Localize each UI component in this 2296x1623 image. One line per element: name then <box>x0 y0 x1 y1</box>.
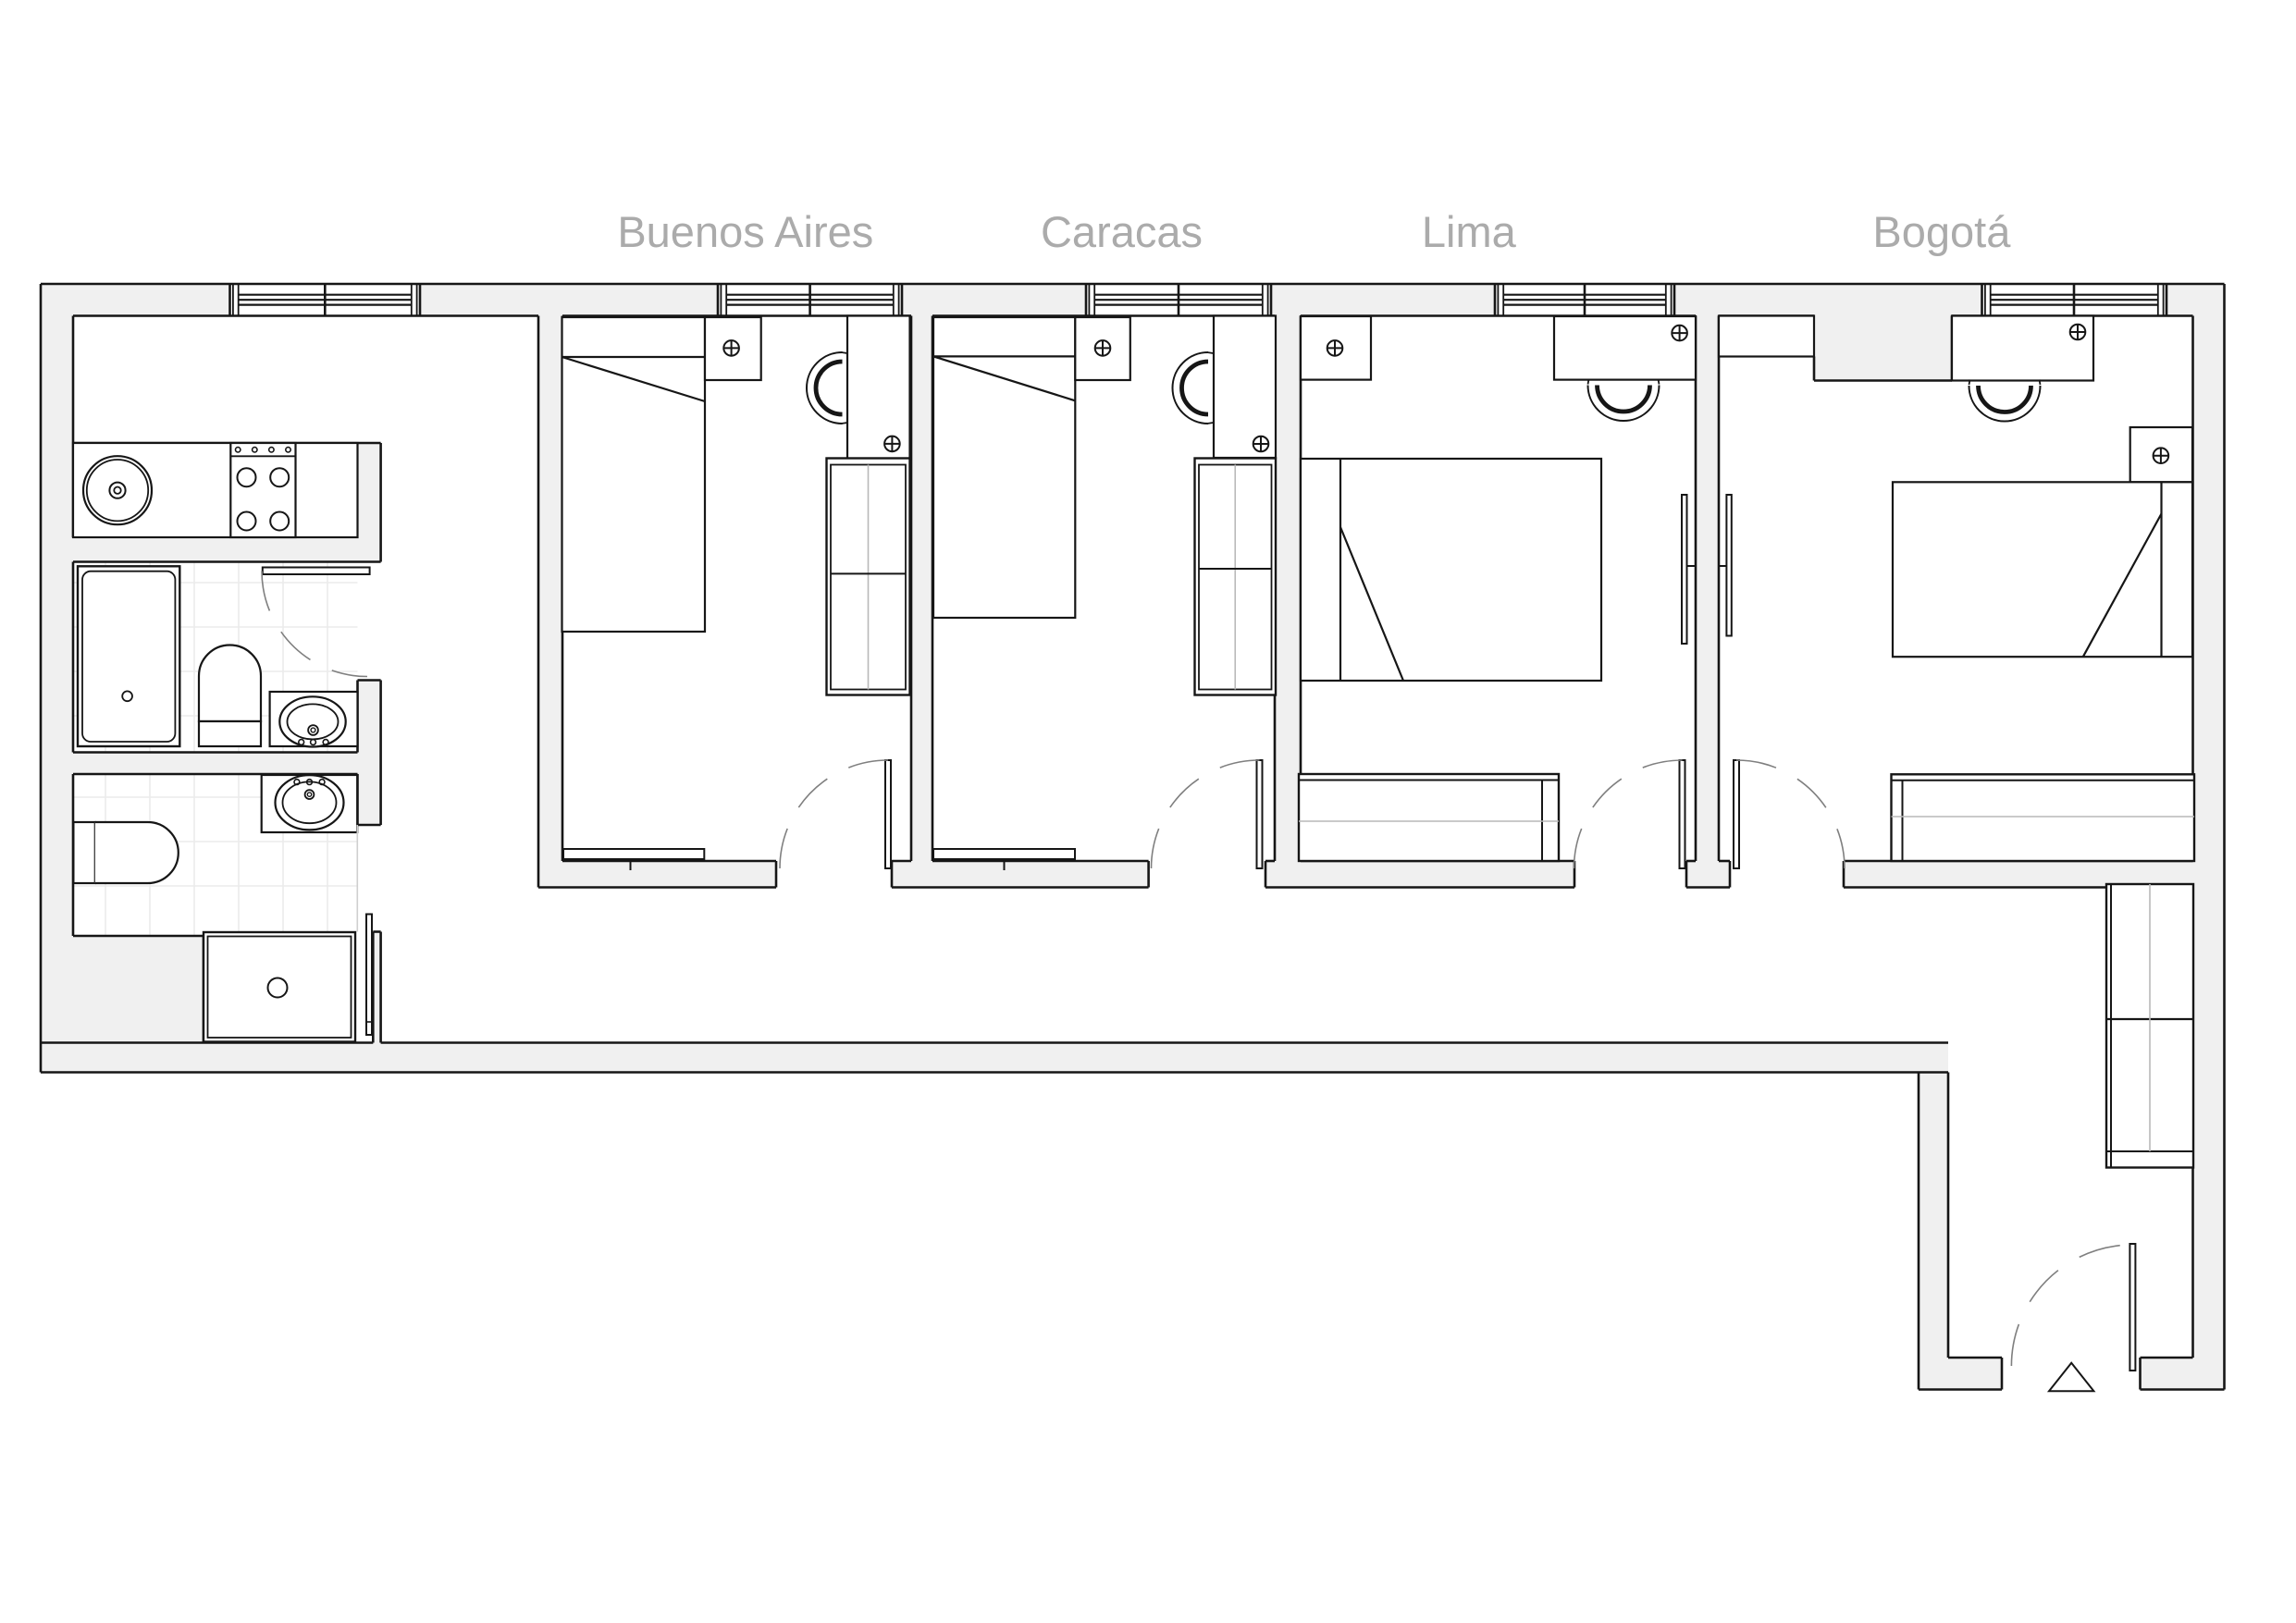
svg-text:Buenos Aires: Buenos Aires <box>617 207 873 256</box>
svg-text:Caracas: Caracas <box>1041 207 1203 256</box>
svg-text:Bogotá: Bogotá <box>1872 207 2011 256</box>
svg-text:Lima: Lima <box>1422 207 1517 256</box>
